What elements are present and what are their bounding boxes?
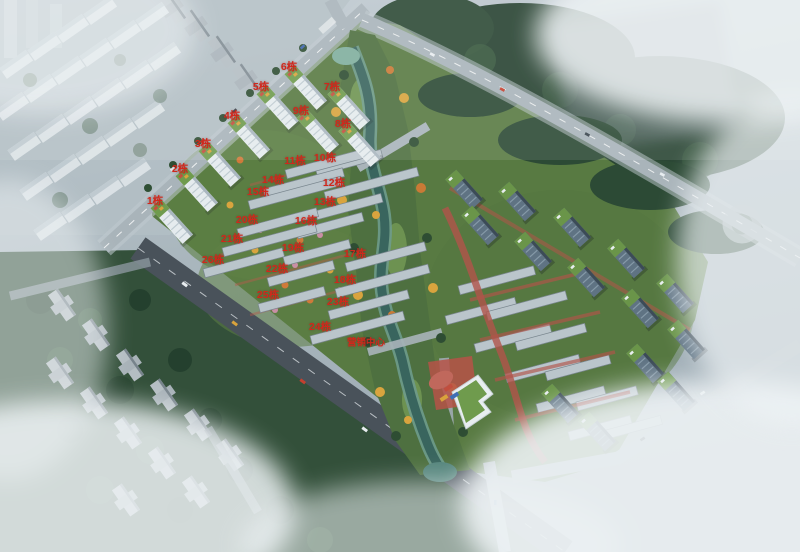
render-scene: [0, 0, 800, 552]
aerial-render: 1栋2栋3栋4栋5栋6栋7栋8栋9栋10栋11栋12栋13栋14栋15栋16栋1…: [0, 0, 800, 552]
